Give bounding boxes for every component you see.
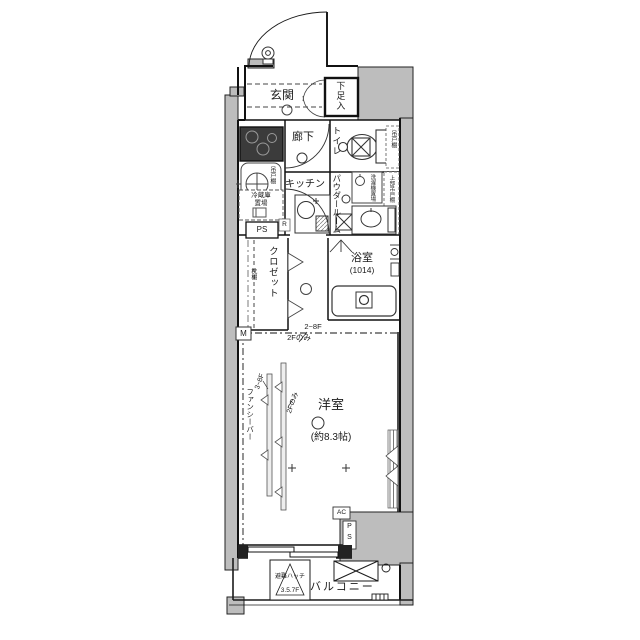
powder-room-label: パウダールーム (331, 174, 341, 234)
toilet-cabinet-label: 吊戸棚 (389, 130, 396, 148)
ps-bottom-label-s: S (343, 534, 356, 542)
folding-door-icon (330, 240, 352, 252)
ps-bottom-label-p: P (343, 523, 356, 531)
toilet-icon (339, 130, 388, 163)
cross-marks (288, 464, 350, 472)
m-mark-label: M (236, 329, 251, 338)
washer-space-label: 洗濯機置場 (369, 174, 375, 202)
ceiling-light-icon (312, 417, 324, 429)
bathtub-icon (332, 286, 396, 316)
outdoor-unit-icon (334, 561, 378, 581)
toilet-label: トイレ (331, 126, 341, 156)
window-right (386, 430, 398, 508)
closet-shelf-label: 枕棚 (249, 268, 256, 280)
rail-bars (267, 363, 286, 510)
floorplan-page: 玄関 下足入 廊下 トイレ 吊戸棚 キッチン 吊戸棚 冷蔵庫 置場 PS R パ… (0, 0, 640, 640)
bath-counter (390, 245, 399, 276)
floorplan-drawing (0, 0, 640, 640)
washer-space (352, 172, 382, 203)
fridge-label-2: 置場 (240, 200, 282, 207)
shoe-box-label: 下足入 (335, 81, 345, 111)
washbasin-icon (352, 206, 396, 234)
hatch-floors-label: 3.5.7F (270, 587, 310, 594)
r-mark-label: R (279, 221, 290, 228)
evacuation-hatch-label: 避難ハッチ (270, 574, 310, 581)
upper-cabinet-label: 上部吊戸棚 (388, 175, 394, 203)
closet-door-icon (288, 253, 303, 271)
entrance-label: 玄関 (258, 89, 306, 103)
fridge-label-1: 冷蔵庫 (240, 192, 282, 199)
sink-icon (298, 202, 315, 219)
bathroom-size-label: (1014) (340, 266, 384, 276)
bathroom-label: 浴室 (340, 252, 384, 265)
closet-area (248, 240, 312, 328)
balcony-label: バルコニー (310, 581, 372, 594)
closet-label: クロゼット (266, 246, 277, 299)
floors-2-8-label: 2~8F (296, 323, 330, 332)
sliding-window (238, 545, 352, 558)
doorbell-icon (262, 47, 274, 64)
main-room-size-label: (約8.3帖) (301, 432, 361, 444)
floor-2-only-label: 2Fのみ (281, 334, 317, 343)
fancy-bar-label: ファンシーバー (245, 388, 254, 441)
main-room-label: 洋室 (306, 398, 356, 413)
hallway-label: 廊下 (286, 131, 320, 144)
ps-label: PS (246, 225, 278, 234)
ceiling-light-icon (297, 153, 307, 163)
ac-label: AC (333, 509, 350, 516)
kitchen-label: キッチン (282, 179, 328, 191)
closet-door-icon (288, 300, 303, 318)
meter-box (240, 127, 283, 161)
drain-icon (372, 594, 388, 600)
ceiling-light-icon (301, 284, 312, 295)
utility-cabinet-label: 吊戸棚 (268, 166, 275, 184)
ceiling-light-icon (342, 195, 350, 203)
